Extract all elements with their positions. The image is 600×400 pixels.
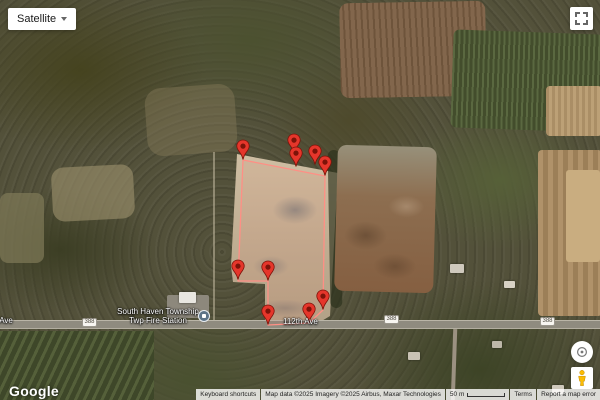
red-map-pin[interactable] <box>288 146 304 168</box>
caret-down-icon <box>61 17 67 21</box>
terrain-field <box>334 145 437 294</box>
attribution-bar: Keyboard shortcuts Map data ©2025 Imager… <box>196 389 600 400</box>
scale-label: 50 m <box>450 391 464 398</box>
red-map-pin[interactable] <box>315 289 331 311</box>
fullscreen-icon <box>575 12 588 25</box>
fullscreen-button[interactable] <box>570 7 593 30</box>
red-map-pin[interactable] <box>235 139 251 161</box>
building <box>408 352 420 360</box>
building <box>179 292 196 303</box>
terrain-clearing <box>51 164 136 222</box>
red-map-pin[interactable] <box>260 304 276 326</box>
rotate-compass-button[interactable] <box>571 341 593 363</box>
pegman-icon <box>576 370 588 386</box>
red-map-pin[interactable] <box>260 260 276 282</box>
map-data-text: Map data ©2025 Imagery ©2025 Airbus, Max… <box>261 389 445 400</box>
keyboard-shortcuts-link[interactable]: Keyboard shortcuts <box>196 389 260 400</box>
street-view-pegman-button[interactable] <box>571 367 593 389</box>
route-shield: 388 <box>82 318 97 327</box>
map-canvas[interactable] <box>0 0 600 400</box>
map-viewport: South Haven Township Twp Fire Station 11… <box>0 0 600 400</box>
red-map-pin[interactable] <box>317 155 333 177</box>
road-label: 112th Ave <box>283 317 318 326</box>
scale-bar <box>467 393 505 397</box>
report-map-error-link[interactable]: Report a map error <box>537 389 600 400</box>
terrain-field <box>546 86 600 136</box>
compass-icon <box>576 346 588 358</box>
terrain-trail <box>213 152 215 320</box>
google-logo[interactable]: Google <box>9 383 59 399</box>
poi-label-line2: Twp Fire Station <box>112 316 204 325</box>
building <box>504 281 515 288</box>
map-type-button[interactable]: Satellite <box>8 8 76 30</box>
civic-building-icon[interactable] <box>198 310 210 322</box>
map-type-label: Satellite <box>17 13 56 25</box>
red-map-pin[interactable] <box>230 259 246 281</box>
terrain-field <box>566 170 600 262</box>
building <box>450 264 464 273</box>
route-shield: 388 <box>540 317 555 326</box>
terrain-clearing <box>0 193 44 263</box>
poi-label[interactable]: South Haven Township Twp Fire Station <box>112 307 204 325</box>
poi-label-line1: South Haven Township <box>112 307 204 316</box>
route-shield: 388 <box>384 315 399 324</box>
terms-link[interactable]: Terms <box>510 389 536 400</box>
terrain-clearing <box>144 83 239 157</box>
road-label: 112th Ave <box>0 316 13 325</box>
building <box>492 341 502 348</box>
scale-control[interactable]: 50 m <box>446 389 509 400</box>
